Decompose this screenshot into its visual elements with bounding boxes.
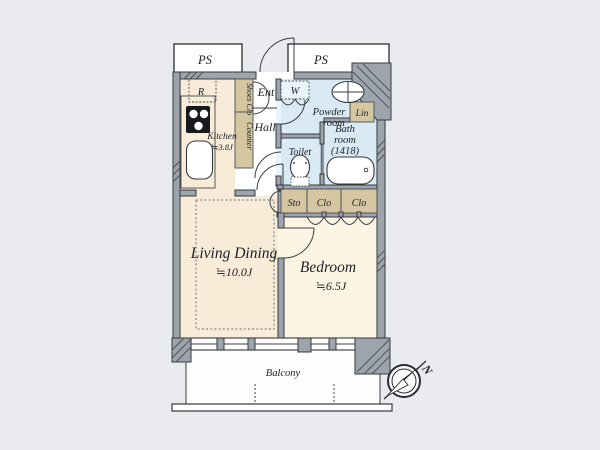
closet-hinge-3 [357,212,361,217]
wall-living-bedroom-2 [278,258,284,338]
closet-hinge-2 [339,212,343,217]
wall-wet-left-1 [276,79,281,100]
wall-top-right [294,72,352,79]
ps-right-label: PS [313,53,329,67]
closet-hinge-1 [322,212,326,217]
bath-label-2: room [334,135,356,146]
window-mullion-2 [248,338,255,350]
living-dining-label: Living Dining [190,245,278,262]
toilet-detail-1 [293,162,295,164]
bedroom-label: Bedroom [300,259,356,276]
toilet-base [291,177,309,186]
toilet-icon [291,155,310,179]
bedroom-size-label: ≒6.5J [316,279,347,293]
stove-burner-2 [200,110,208,118]
hall-label: Hall [253,120,276,134]
wall-toilet-bath-2 [320,174,324,186]
entrance-label: Ent [257,85,275,99]
toilet-label: Toilet [289,147,312,158]
window-mullion-1 [217,338,224,350]
stove-burner-3 [194,122,202,130]
wall-wet-left-2 [276,124,281,148]
floorplan-canvas: PS PS R Kitchen ≒3.8J Shoes Clo Counter … [0,0,600,450]
wall-kitchen-stub [180,190,196,196]
storage-label: Sto [288,198,301,209]
wall-bedroom-top [277,213,377,217]
stove-burner-1 [189,110,197,118]
toilet-detail-2 [305,162,307,164]
wall-hall-bottom [235,190,255,196]
wall-left [173,72,180,345]
shoes-closet-label: Shoes Clo [245,83,254,115]
wall-right [377,116,385,341]
ps-left-label: PS [197,53,213,67]
window-mullion-3 [329,338,336,350]
balcony-label: Balcony [266,368,301,379]
entrance-threshold [256,72,294,79]
powder-room-label-1: Powder [312,107,347,118]
closet2-label: Clo [352,198,366,209]
powder-door-gap [276,100,281,124]
bedroom-floor [284,217,377,338]
kitchen-sink-icon [187,141,213,179]
closet1-label: Clo [317,198,331,209]
balcony-railing [172,404,392,411]
window-pier [298,338,311,352]
wall-powder-toilet [281,134,324,138]
living-dining-size-label: ≒10.0J [216,265,253,279]
bath-label-1: Bath [335,124,355,135]
bath-label-3: (1418) [331,146,359,157]
washer-label: W [291,86,301,97]
bathtub-icon [327,157,374,184]
linen-label: Lin [355,109,369,119]
kitchen-label: Kitchen [206,132,237,142]
refrigerator-label: R [197,87,205,98]
bedroom-door-gap [278,228,284,258]
kitchen-size-label: ≒3.8J [211,142,234,152]
